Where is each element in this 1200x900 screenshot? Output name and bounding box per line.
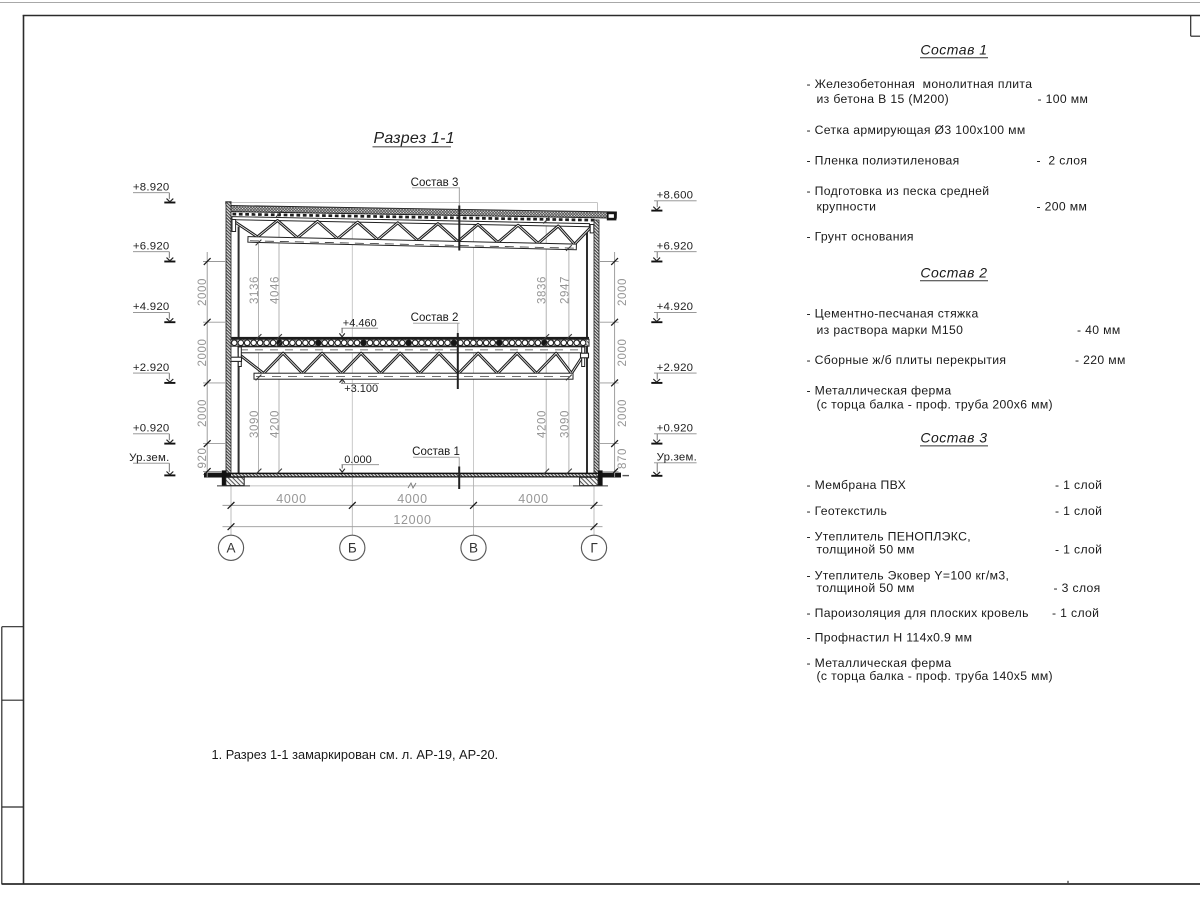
svg-text:Состав 1: Состав 1 bbox=[920, 41, 987, 57]
svg-text:- 100 мм: - 100 мм bbox=[1038, 92, 1089, 106]
svg-text:- Геотекстиль: - Геотекстиль bbox=[807, 504, 888, 518]
svg-text:- 1 слой: - 1 слой bbox=[1055, 504, 1102, 518]
svg-text:+2.920: +2.920 bbox=[133, 362, 170, 374]
svg-text:- Пленка полиэтиленовая: - Пленка полиэтиленовая bbox=[807, 154, 960, 168]
svg-text:4046: 4046 bbox=[270, 276, 282, 304]
svg-text:толщиной 50 мм: толщиной 50 мм bbox=[817, 581, 915, 595]
svg-text:2000: 2000 bbox=[197, 278, 209, 306]
svg-text:Состав 3: Состав 3 bbox=[920, 430, 987, 446]
svg-text:- Сетка армирующая Ø3 100х100: - Сетка армирующая Ø3 100х100 мм bbox=[807, 123, 1026, 137]
svg-text:- Подготовка из песка средней: - Подготовка из песка средней bbox=[807, 184, 990, 198]
svg-text:2947: 2947 bbox=[559, 276, 571, 304]
svg-text:3090: 3090 bbox=[559, 410, 571, 438]
svg-text:Разрез 1-1: Разрез 1-1 bbox=[374, 130, 455, 147]
svg-text:+0.920: +0.920 bbox=[133, 423, 170, 435]
svg-text:Г: Г bbox=[590, 540, 598, 555]
svg-text:(с торца балка - проф. труба 2: (с торца балка - проф. труба 200х6 мм) bbox=[817, 398, 1053, 412]
svg-text:крупности: крупности bbox=[817, 200, 877, 214]
svg-text:+2.920: +2.920 bbox=[657, 362, 694, 374]
svg-text:Состав 3: Состав 3 bbox=[411, 177, 459, 189]
svg-text:- Мембрана ПВХ: - Мембрана ПВХ bbox=[807, 478, 907, 492]
svg-text:+4.460: +4.460 bbox=[343, 317, 377, 329]
svg-text:- 3 слоя: - 3 слоя bbox=[1054, 581, 1101, 595]
svg-text:920: 920 bbox=[197, 448, 209, 469]
svg-text:3090: 3090 bbox=[249, 410, 261, 438]
svg-text:- Утеплитель ПЕНОПЛЭКС,: - Утеплитель ПЕНОПЛЭКС, bbox=[807, 530, 971, 544]
svg-text:870: 870 bbox=[617, 448, 629, 469]
svg-text:- 40 мм: - 40 мм bbox=[1077, 323, 1121, 337]
svg-text:- Железобетонная монолитная п: - Железобетонная монолитная плита bbox=[807, 77, 1033, 91]
svg-text:В: В bbox=[469, 540, 478, 555]
svg-text:- Пароизоляция для плоских кро: - Пароизоляция для плоских кровель bbox=[807, 606, 1029, 620]
svg-text:- Грунт основания: - Грунт основания bbox=[807, 230, 914, 244]
svg-text:0.000: 0.000 bbox=[344, 454, 372, 466]
svg-text:- 1 слой: - 1 слой bbox=[1052, 606, 1099, 620]
svg-text:2000: 2000 bbox=[617, 399, 629, 427]
svg-text:+6.920: +6.920 bbox=[657, 241, 694, 253]
svg-text:4200: 4200 bbox=[270, 410, 282, 438]
svg-text:+6.920: +6.920 bbox=[133, 241, 170, 253]
svg-text:+8.920: +8.920 bbox=[133, 182, 170, 194]
svg-text:- Профнастил Н 114х0.9 мм: - Профнастил Н 114х0.9 мм bbox=[807, 631, 973, 645]
svg-text:толщиной 50 мм: толщиной 50 мм bbox=[817, 543, 915, 557]
svg-text:- Сборные ж/б плиты перекрытия: - Сборные ж/б плиты перекрытия bbox=[807, 353, 1007, 367]
svg-text:Ур.зем.: Ур.зем. bbox=[657, 452, 697, 464]
svg-text:- 2 слоя: - 2 слоя bbox=[1037, 154, 1088, 168]
svg-text:2000: 2000 bbox=[617, 278, 629, 306]
svg-text:из раствора марки М150: из раствора марки М150 bbox=[817, 323, 964, 337]
svg-text:+4.920: +4.920 bbox=[657, 301, 694, 313]
svg-text:2000: 2000 bbox=[197, 339, 209, 367]
svg-text:Ур.зем.: Ур.зем. bbox=[129, 452, 169, 464]
svg-text:- Металлическая ферма: - Металлическая ферма bbox=[807, 384, 952, 398]
svg-text:+0.920: +0.920 bbox=[657, 423, 694, 435]
svg-text:+4.920: +4.920 bbox=[133, 301, 170, 313]
svg-text:- Цементно-песчаная стяжка: - Цементно-песчаная стяжка bbox=[807, 307, 979, 321]
svg-text:- Металлическая ферма: - Металлическая ферма bbox=[807, 656, 952, 670]
svg-text:4000: 4000 bbox=[276, 492, 307, 506]
svg-text:3836: 3836 bbox=[537, 276, 549, 304]
svg-text:Состав 2: Состав 2 bbox=[411, 312, 459, 324]
svg-text:4000: 4000 bbox=[397, 492, 428, 506]
svg-text:А: А bbox=[226, 540, 235, 555]
svg-text:4200: 4200 bbox=[537, 410, 549, 438]
svg-text:2000: 2000 bbox=[617, 339, 629, 367]
svg-text:- 1 слой: - 1 слой bbox=[1055, 478, 1102, 492]
svg-text:+3.100: +3.100 bbox=[344, 383, 378, 395]
svg-text:+8.600: +8.600 bbox=[657, 190, 694, 202]
svg-text:- 1 слой: - 1 слой bbox=[1055, 543, 1102, 557]
svg-text:Состав 2: Состав 2 bbox=[920, 264, 987, 280]
svg-text:3136: 3136 bbox=[249, 276, 261, 304]
svg-text:12000: 12000 bbox=[393, 513, 431, 527]
svg-text:1. Разрез 1-1 замаркирован см.: 1. Разрез 1-1 замаркирован см. л. АР-19,… bbox=[212, 747, 499, 762]
svg-text:Б: Б bbox=[348, 540, 357, 555]
svg-text:- 220 мм: - 220 мм bbox=[1075, 353, 1126, 367]
svg-text:- 200 мм: - 200 мм bbox=[1037, 200, 1088, 214]
svg-text:(с торца балка - проф. труба 1: (с торца балка - проф. труба 140х5 мм) bbox=[817, 669, 1053, 683]
svg-text:4000: 4000 bbox=[518, 492, 549, 506]
svg-text:Состав 1: Состав 1 bbox=[412, 446, 460, 458]
svg-text:из бетона В 15 (М200): из бетона В 15 (М200) bbox=[817, 92, 950, 106]
svg-text:2000: 2000 bbox=[197, 399, 209, 427]
